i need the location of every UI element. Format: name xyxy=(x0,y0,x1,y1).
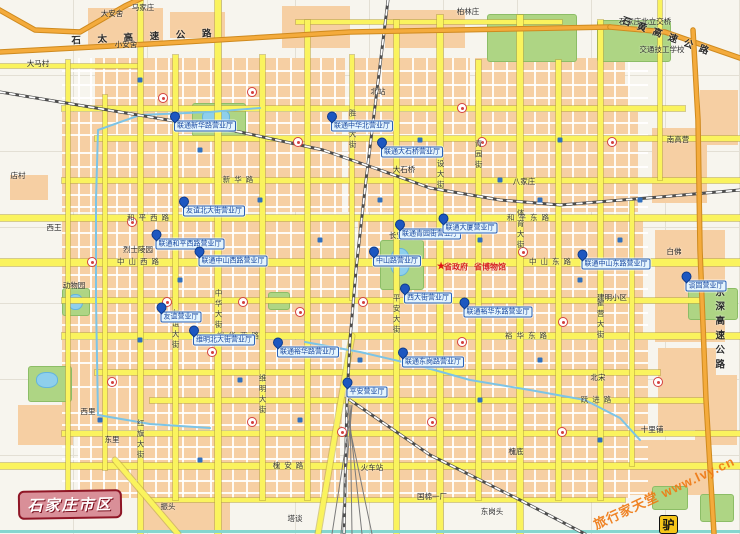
street-label: 和平西路 xyxy=(127,214,173,222)
unicom-poi-label: 联通和平西路营业厅 xyxy=(156,239,225,250)
unicom-poi-label: 联通大石桥营业厅 xyxy=(381,147,443,158)
city-block xyxy=(282,6,350,48)
street-label-vertical: 平安大街 xyxy=(392,294,400,336)
government-label: 省博物馆 xyxy=(474,264,506,273)
bus-stop-icon xyxy=(538,198,543,203)
place-label: 北宋 xyxy=(591,374,606,382)
scenic-spot-icon xyxy=(295,307,305,317)
place-label: 店村 xyxy=(11,172,26,180)
place-label: 东岗头 xyxy=(481,508,504,516)
major-road xyxy=(630,200,634,466)
unicom-poi-label: 西大街营业厅 xyxy=(404,293,452,304)
unicom-poi[interactable]: 平安营业厅 xyxy=(347,387,388,398)
unicom-poi[interactable]: 联通裕华路营业厅 xyxy=(277,347,339,358)
bus-stop-icon xyxy=(418,138,423,143)
watermark-logo-icon: 驴 xyxy=(659,515,678,534)
major-road xyxy=(62,106,685,111)
street-label-vertical: 体育大街 xyxy=(516,209,524,251)
bus-stop-icon xyxy=(358,358,363,363)
major-road xyxy=(350,55,354,300)
bus-stop-icon xyxy=(498,178,503,183)
place-label: 西里 xyxy=(81,408,96,416)
unicom-poi[interactable]: 联通中山东路营业厅 xyxy=(582,259,651,270)
place-label: 南高营 xyxy=(667,136,690,144)
street-label: 新华路 xyxy=(223,176,258,184)
scenic-spot-icon xyxy=(358,297,368,307)
unicom-poi-label: 联通东岗路营业厅 xyxy=(402,357,464,368)
unicom-poi[interactable]: 联通新华路营业厅 xyxy=(174,121,236,132)
unicom-poi[interactable]: 联通东岗路营业厅 xyxy=(402,357,464,368)
scenic-spot-icon xyxy=(457,337,467,347)
major-road xyxy=(103,95,107,470)
place-label: 大石桥 xyxy=(393,166,416,174)
unicom-poi-label: 中山路营业厅 xyxy=(373,256,421,267)
unicom-poi-label: 维明北大街营业厅 xyxy=(193,335,255,346)
unicom-poi[interactable]: 联通中华北营业厅 xyxy=(331,121,393,132)
unicom-poi-label: 联通裕华东路营业厅 xyxy=(464,307,533,318)
bus-stop-icon xyxy=(138,78,143,83)
major-road xyxy=(260,55,265,500)
major-road xyxy=(62,333,740,339)
unicom-poi-label: 联通中山东路营业厅 xyxy=(582,259,651,270)
street-label: 槐安路 xyxy=(273,462,308,470)
scenic-spot-icon xyxy=(207,347,217,357)
scenic-spot-icon xyxy=(653,377,663,387)
unicom-poi[interactable]: 联通和平西路营业厅 xyxy=(156,239,225,250)
unicom-poi[interactable]: 联通大厦营业厅 xyxy=(443,223,498,234)
major-road xyxy=(150,398,705,403)
major-road xyxy=(394,20,399,534)
bus-stop-icon xyxy=(298,418,303,423)
major-road xyxy=(62,431,740,436)
bus-stop-icon xyxy=(318,238,323,243)
place-label: 柏林庄 xyxy=(457,8,480,16)
bus-stop-icon xyxy=(198,458,203,463)
major-road xyxy=(476,60,481,500)
place-label: 动物园 xyxy=(63,282,86,290)
major-road xyxy=(0,215,740,221)
bus-stop-icon xyxy=(578,278,583,283)
major-road xyxy=(305,20,310,500)
bus-stop-icon xyxy=(198,148,203,153)
major-road xyxy=(62,178,740,183)
place-label: 国棉一厂 xyxy=(417,493,447,501)
place-label: 马家庄 xyxy=(132,4,155,12)
scenic-spot-icon xyxy=(457,103,467,113)
unicom-poi-label: 联通中华北营业厅 xyxy=(331,121,393,132)
city-map-shijiazhuang[interactable]: 大安舍马家庄小安舍大马村店村西王动物园振头塔谈东岗头槐底十里铺北宋白佛建明小区南… xyxy=(0,0,740,534)
unicom-poi[interactable]: 友谊北大街营业厅 xyxy=(183,206,245,217)
scenic-spot-icon xyxy=(247,87,257,97)
unicom-poi[interactable]: 西大街营业厅 xyxy=(404,293,452,304)
bus-stop-icon xyxy=(478,398,483,403)
unicom-poi-label: 平安营业厅 xyxy=(347,387,388,398)
unicom-poi[interactable]: 联通大石桥营业厅 xyxy=(381,147,443,158)
place-label: 火车站 xyxy=(361,464,384,472)
place-label: 八家庄 xyxy=(513,178,536,186)
bus-stop-icon xyxy=(98,418,103,423)
unicom-poi[interactable]: 友谊营业厅 xyxy=(161,312,202,323)
major-road xyxy=(437,15,443,534)
street-label: 跃进路 xyxy=(581,396,616,404)
place-label: 大安舍 xyxy=(101,10,124,18)
scenic-spot-icon xyxy=(158,93,168,103)
place-label: 西王 xyxy=(47,224,62,232)
park-area xyxy=(700,494,734,522)
major-road xyxy=(0,64,140,68)
bus-stop-icon xyxy=(378,198,383,203)
street-label-vertical: 中华大街 xyxy=(214,289,222,331)
lake-water xyxy=(36,372,58,388)
street-label: 中山西路 xyxy=(117,258,163,266)
bus-stop-icon xyxy=(558,138,563,143)
unicom-poi-label: 谈固营业厅 xyxy=(686,281,727,292)
unicom-poi[interactable]: 联通中山西路营业厅 xyxy=(199,256,268,267)
scenic-spot-icon xyxy=(337,427,347,437)
scenic-spot-icon xyxy=(238,297,248,307)
street-label: 中山东路 xyxy=(529,258,575,266)
place-label: 北站 xyxy=(371,88,386,96)
unicom-poi[interactable]: 中山路营业厅 xyxy=(373,256,421,267)
scenic-spot-icon xyxy=(247,417,257,427)
bus-stop-icon xyxy=(638,198,643,203)
unicom-poi-label: 联通新华路营业厅 xyxy=(174,121,236,132)
scenic-spot-icon xyxy=(87,257,97,267)
major-road xyxy=(95,370,660,375)
government-label: 省政府 xyxy=(444,264,468,273)
unicom-poi[interactable]: 维明北大街营业厅 xyxy=(193,335,255,346)
capital-star-icon: ★ xyxy=(436,262,446,273)
expressway-label: 京深高速公路 xyxy=(713,287,723,374)
place-label: 烈士陵园 xyxy=(123,246,153,254)
place-label: 槐底 xyxy=(509,448,524,456)
unicom-poi-label: 联通裕华路营业厅 xyxy=(277,347,339,358)
bus-stop-icon xyxy=(618,238,623,243)
map-title-plate: 石家庄市区 xyxy=(18,489,122,520)
scenic-spot-icon xyxy=(427,417,437,427)
place-label: 十里铺 xyxy=(641,426,664,434)
place-label: 振头 xyxy=(161,503,176,511)
major-road xyxy=(215,0,221,534)
scenic-spot-icon xyxy=(557,427,567,437)
major-road xyxy=(150,498,625,502)
place-label: 白佛 xyxy=(667,248,682,256)
scenic-spot-icon xyxy=(107,377,117,387)
street-label-vertical: 青园街 xyxy=(474,139,482,171)
bus-stop-icon xyxy=(178,278,183,283)
unicom-poi-label: 友谊北大街营业厅 xyxy=(183,206,245,217)
unicom-poi-label: 友谊营业厅 xyxy=(161,312,202,323)
bus-stop-icon xyxy=(598,438,603,443)
unicom-poi[interactable]: 谈固营业厅 xyxy=(686,281,727,292)
place-label: 东里 xyxy=(105,436,120,444)
ring-road xyxy=(0,530,740,533)
major-road xyxy=(517,15,523,534)
street-label: 裕华东路 xyxy=(505,332,551,340)
bus-stop-icon xyxy=(238,378,243,383)
place-label: 塔谈 xyxy=(288,515,303,523)
scenic-spot-icon xyxy=(607,137,617,147)
bus-stop-icon xyxy=(478,238,483,243)
bus-stop-icon xyxy=(258,198,263,203)
unicom-poi-label: 联通中山西路营业厅 xyxy=(199,256,268,267)
bus-stop-icon xyxy=(138,338,143,343)
street-label-vertical: 维明大街 xyxy=(258,374,266,416)
street-label-vertical: 翟营大街 xyxy=(596,299,604,341)
street-label: 和平东路 xyxy=(507,214,553,222)
unicom-poi[interactable]: 联通裕华东路营业厅 xyxy=(464,307,533,318)
unicom-poi-label: 联通大厦营业厅 xyxy=(443,223,498,234)
bus-stop-icon xyxy=(538,358,543,363)
place-label: 大马村 xyxy=(27,60,50,68)
scenic-spot-icon xyxy=(558,317,568,327)
scenic-spot-icon xyxy=(293,137,303,147)
street-label-vertical: 红旗大街 xyxy=(136,419,144,461)
